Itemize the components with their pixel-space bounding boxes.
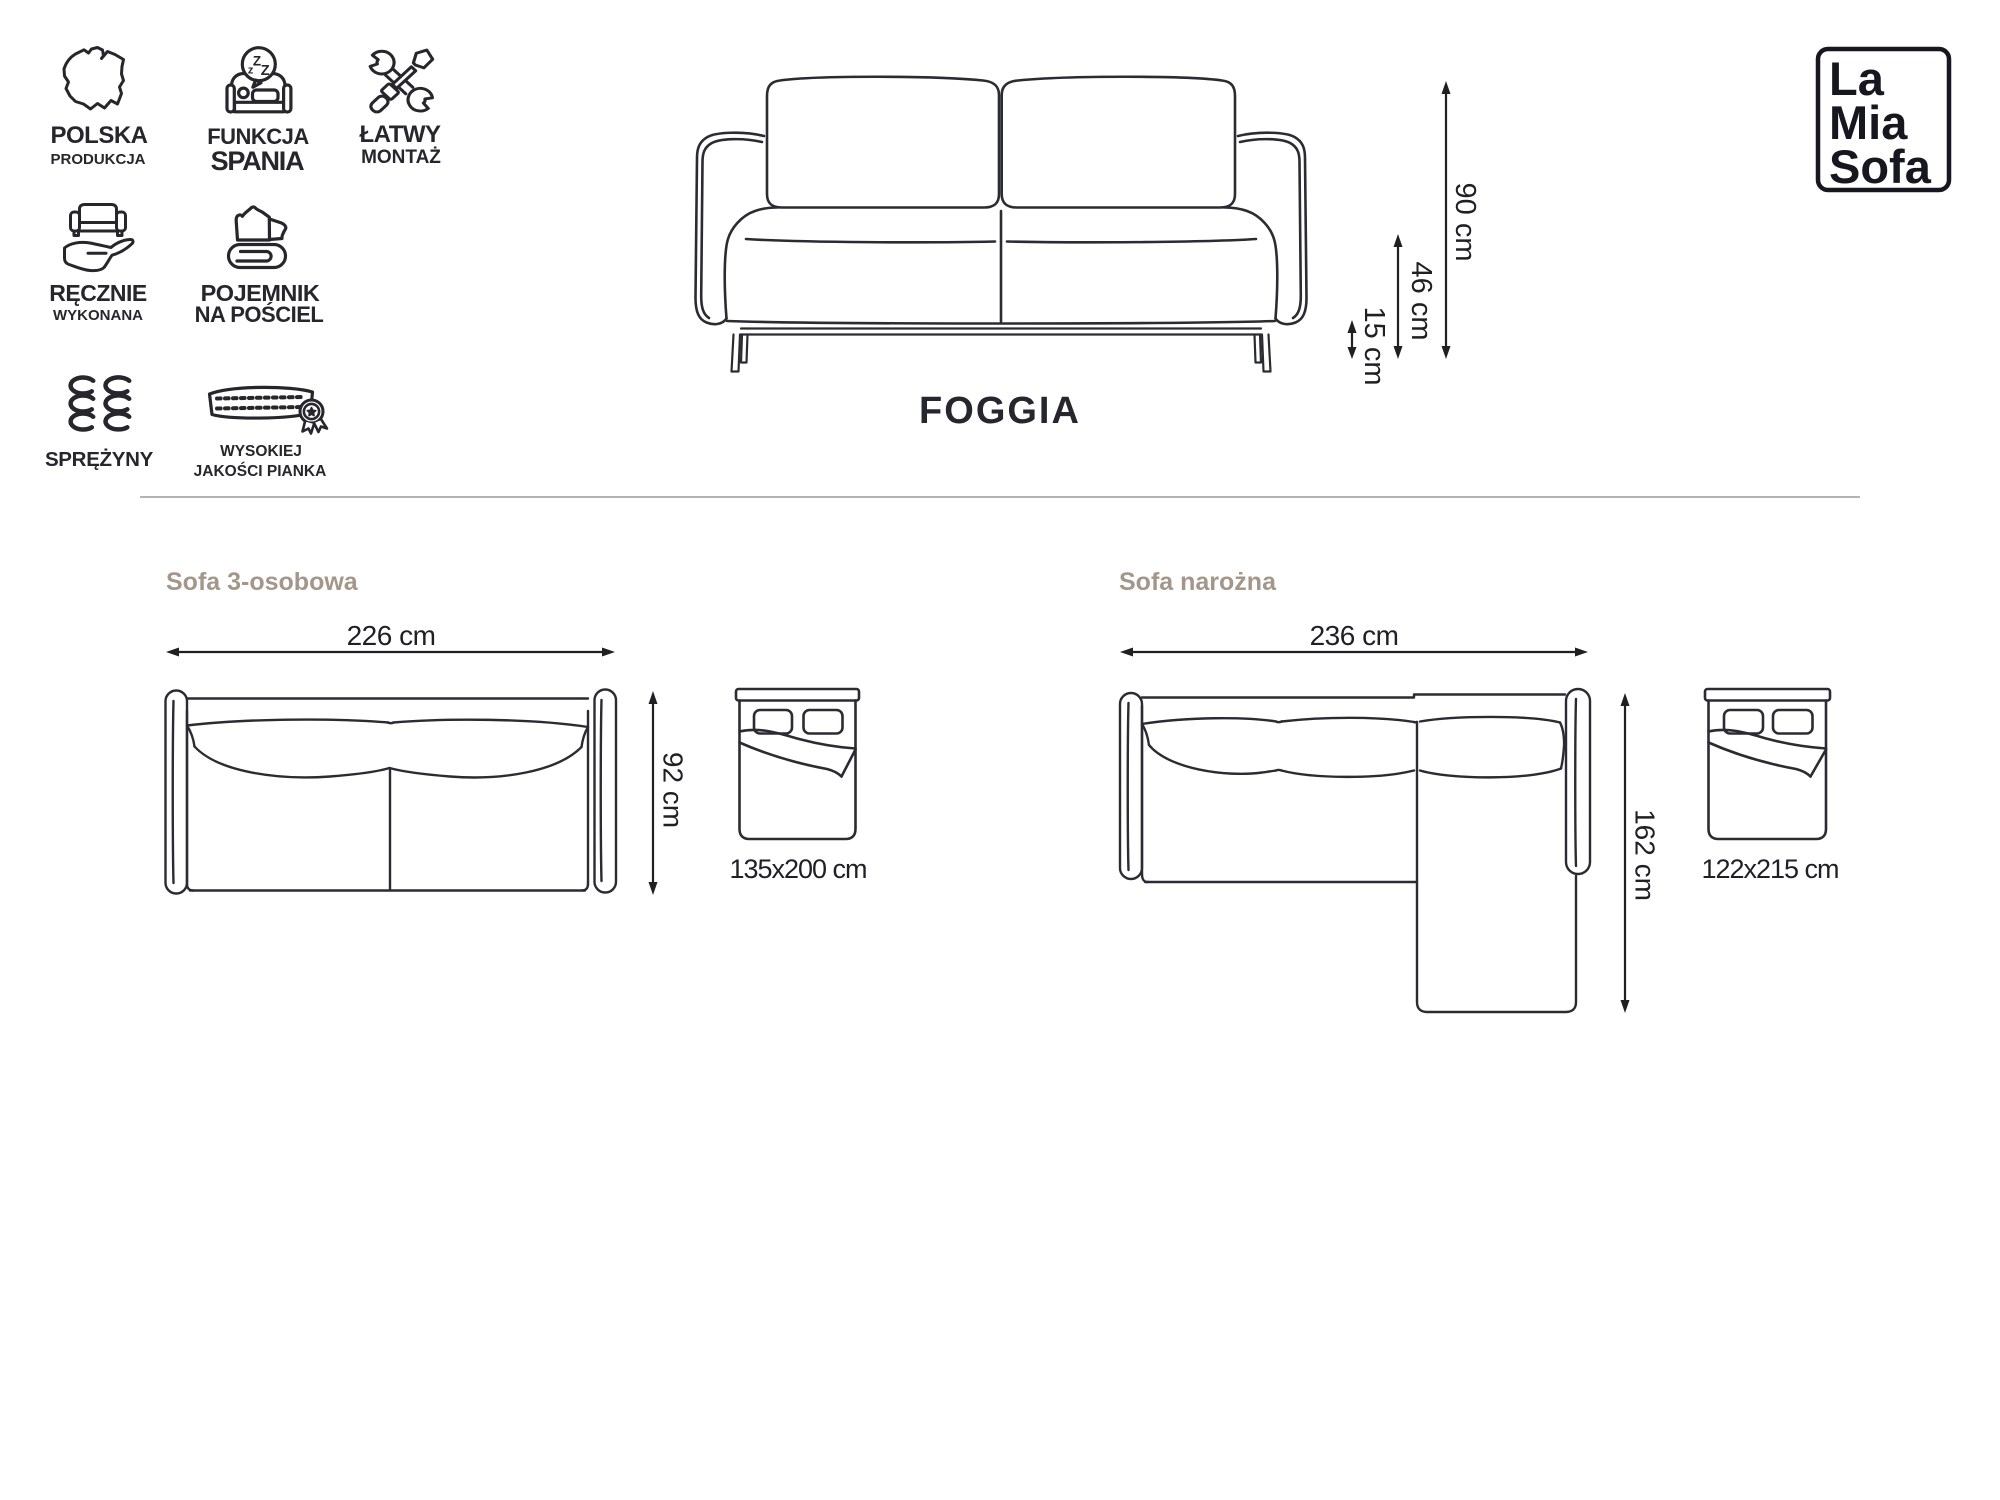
- svg-text:WYSOKIEJ: WYSOKIEJ: [220, 443, 302, 460]
- svg-text:46 cm: 46 cm: [1405, 262, 1437, 341]
- svg-text:WYKONANA: WYKONANA: [53, 307, 143, 324]
- svg-text:RĘCZNIE: RĘCZNIE: [49, 280, 147, 306]
- svg-text:SPRĘŻYNY: SPRĘŻYNY: [45, 448, 154, 471]
- svg-text:Sofa 3-osobowa: Sofa 3-osobowa: [166, 568, 359, 596]
- svg-text:SPANIA: SPANIA: [211, 146, 305, 176]
- svg-text:162 cm: 162 cm: [1630, 809, 1661, 901]
- svg-text:236 cm: 236 cm: [1310, 620, 1399, 651]
- svg-text:MONTAŻ: MONTAŻ: [361, 147, 441, 168]
- svg-text:NA POŚCIEL: NA POŚCIEL: [195, 302, 324, 327]
- svg-text:90 cm: 90 cm: [1449, 183, 1481, 262]
- svg-text:92 cm: 92 cm: [658, 752, 689, 828]
- svg-text:122x215 cm: 122x215 cm: [1701, 854, 1838, 884]
- svg-text:15 cm: 15 cm: [1358, 307, 1390, 386]
- svg-text:226 cm: 226 cm: [347, 620, 436, 651]
- svg-text:FOGGIA: FOGGIA: [919, 390, 1081, 432]
- svg-text:Z: Z: [261, 63, 270, 79]
- svg-text:ŁATWY: ŁATWY: [359, 121, 441, 148]
- svg-text:POLSKA: POLSKA: [50, 122, 147, 149]
- svg-text:Sofa narożna: Sofa narożna: [1119, 568, 1277, 596]
- svg-text:PRODUKCJA: PRODUKCJA: [50, 151, 145, 168]
- svg-text:135x200 cm: 135x200 cm: [729, 854, 866, 884]
- svg-text:JAKOŚCI PIANKA: JAKOŚCI PIANKA: [194, 462, 327, 480]
- svg-text:Sofa: Sofa: [1829, 140, 1932, 193]
